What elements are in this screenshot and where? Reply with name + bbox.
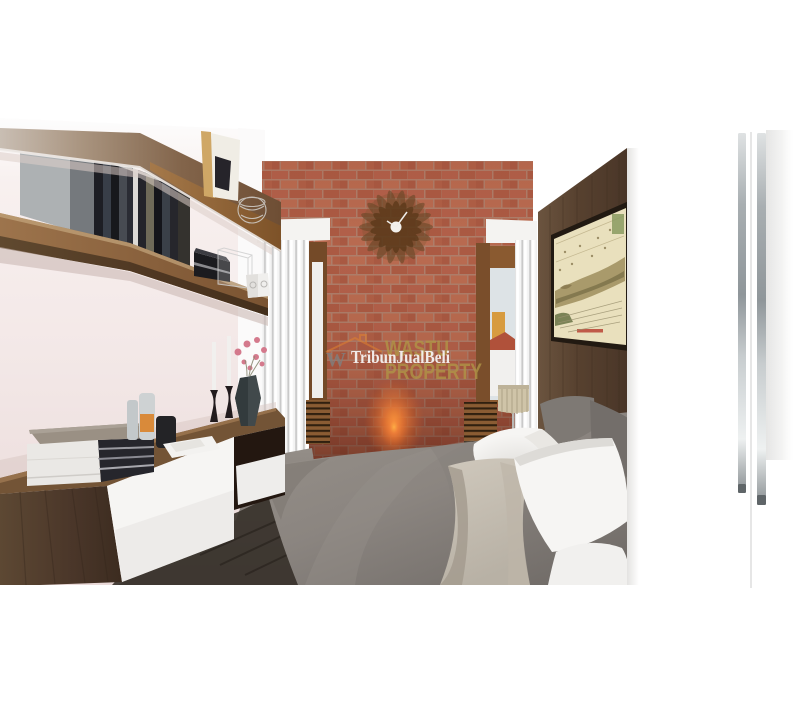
svg-text:W: W [326, 349, 346, 371]
svg-text:TribunJualBeli: TribunJualBeli [351, 347, 450, 367]
